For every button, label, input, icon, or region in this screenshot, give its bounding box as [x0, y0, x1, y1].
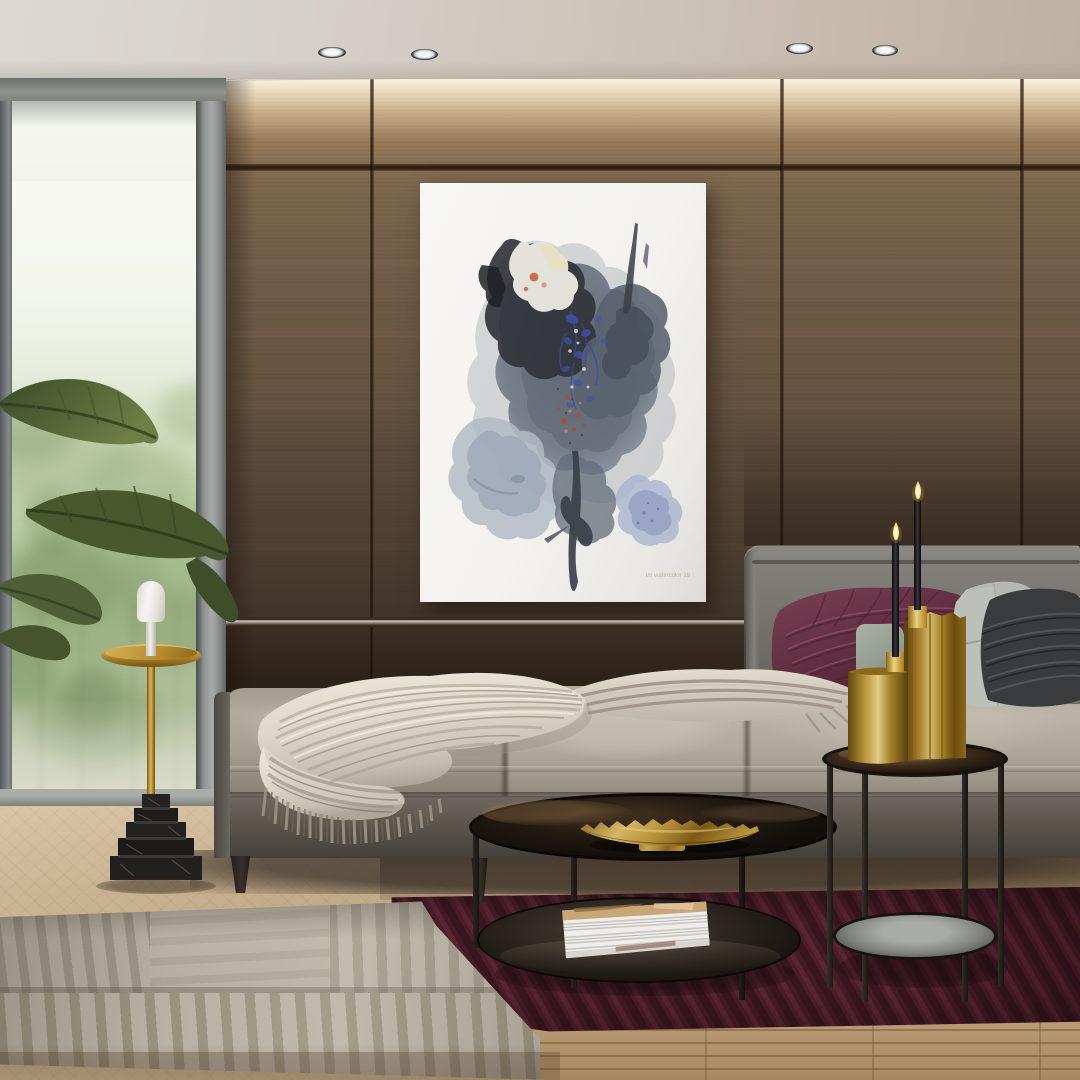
svg-text:im watercolor 19: im watercolor 19 [646, 573, 691, 579]
